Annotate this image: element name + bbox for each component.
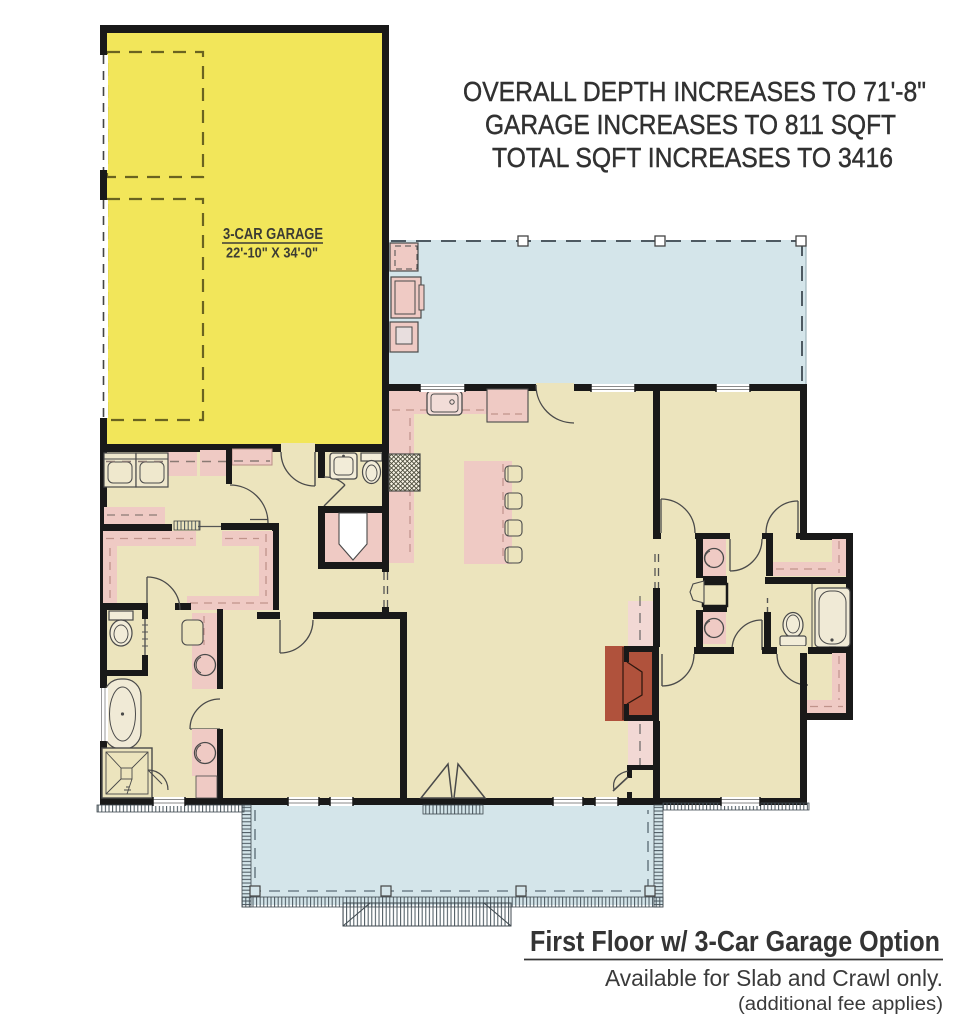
svg-text:22'-10" X 34'-0": 22'-10" X 34'-0" <box>226 245 318 262</box>
svg-text:First Floor w/ 3-Car Garage Op: First Floor w/ 3-Car Garage Option <box>530 926 940 958</box>
svg-text:OVERALL DEPTH INCREASES TO 71': OVERALL DEPTH INCREASES TO 71'-8" <box>463 76 926 107</box>
svg-text:Available for Slab and Crawl o: Available for Slab and Crawl only. <box>605 965 943 991</box>
svg-text:GARAGE INCREASES TO 811 SQFT: GARAGE INCREASES TO 811 SQFT <box>485 109 896 140</box>
svg-text:TOTAL SQFT INCREASES TO 3416: TOTAL SQFT INCREASES TO 3416 <box>492 142 893 173</box>
svg-text:3-CAR GARAGE: 3-CAR GARAGE <box>223 226 323 243</box>
svg-text:(additional fee applies): (additional fee applies) <box>738 994 943 1015</box>
